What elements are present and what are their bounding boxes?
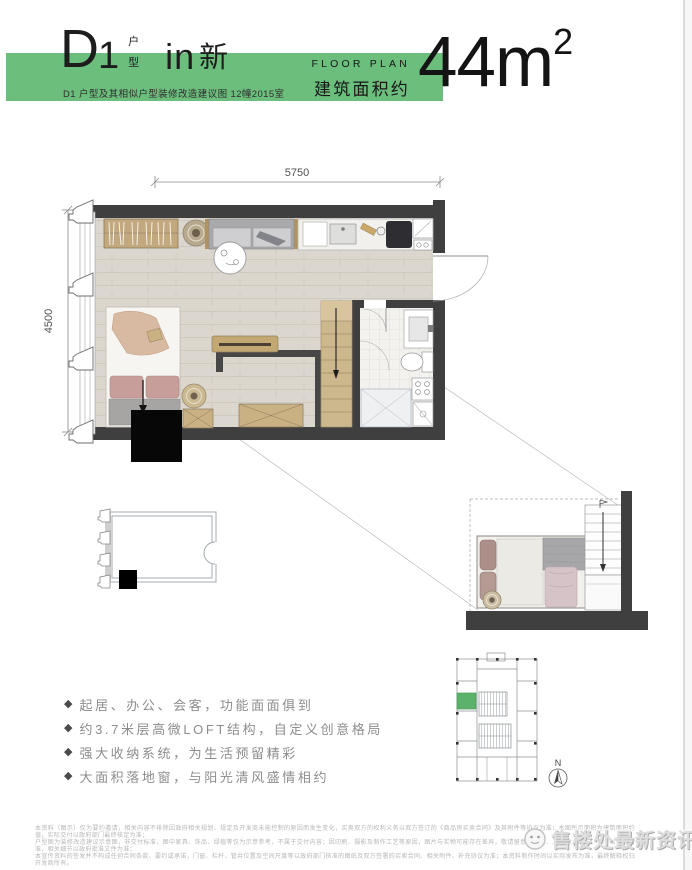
main-plan: 5750 4500 — [43, 167, 488, 462]
unit-label-stack: 户 型 — [128, 37, 139, 69]
disclaimer-line: 本宣传资料的签发并不构成任何合同条款、要约或承诺，门窗、栏杆、管井位置及空间尺度… — [35, 854, 635, 868]
unit-number: 1 — [98, 41, 119, 71]
detail-wall — [621, 491, 632, 619]
north-compass: N — [549, 758, 567, 787]
kitchen-counter — [298, 219, 433, 250]
unit-title: D 1 户 型 in 新 — [60, 27, 228, 71]
highlighted-unit — [457, 693, 476, 709]
feature-item: ◆ 大面积落地窗，与阳光清风盛情相约 — [64, 764, 383, 788]
area-superscript: 2 — [553, 21, 572, 62]
diamond-bullet-icon: ◆ — [64, 723, 72, 734]
diamond-bullet-icon: ◆ — [64, 771, 72, 782]
diamond-bullet-icon: ◆ — [64, 747, 72, 758]
watermark-text: 售楼处最新资讯 — [551, 824, 692, 853]
detail-stairs — [585, 500, 622, 610]
bedroom-detail — [466, 491, 648, 630]
entry-door — [433, 253, 488, 301]
area-value: 44m2 — [418, 24, 572, 98]
round-table — [214, 242, 246, 274]
watermark-logo-icon — [522, 826, 548, 852]
building-key-plan — [456, 653, 537, 781]
dimension-left — [62, 206, 74, 436]
feature-item: ◆ 约3.7米层高微LOFT结构，自定义创意格局 — [64, 716, 383, 740]
tv-cabinet — [239, 404, 303, 427]
feature-item: ◆ 强大收纳系统，为生活预留精彩 — [64, 740, 383, 764]
diamond-bullet-icon: ◆ — [64, 699, 72, 710]
floorplan-caption: FLOOR PLAN 建筑面积约 — [298, 58, 410, 100]
north-label: N — [555, 758, 562, 768]
wardrobe — [104, 219, 178, 248]
sofa — [205, 219, 298, 249]
stairs — [321, 301, 352, 427]
title-suffix-latin: in — [165, 43, 195, 71]
detail-bed — [477, 536, 587, 609]
unit-subtitle: D1 户型及其相似户型装修改造建议图 12幢2015室 — [63, 86, 284, 100]
feature-item: ◆ 起居、办公、会客，功能面面俱到 — [64, 692, 383, 716]
black-block — [131, 410, 182, 462]
dim-height-label: 4500 — [43, 309, 55, 333]
bathroom — [360, 300, 433, 427]
shelf-unit — [212, 336, 278, 352]
floorplan-caption-en: FLOOR PLAN — [298, 58, 410, 70]
unit-label-bottom: 型 — [128, 58, 139, 69]
window-strip — [69, 200, 95, 443]
floor-plan-page: D 1 户 型 in 新 D1 户型及其相似户型装修改造建议图 12幢2015室… — [0, 0, 692, 870]
area-label: 建筑面积约 — [298, 75, 410, 100]
loft-outline-plan — [98, 509, 218, 589]
unit-letter: D — [60, 27, 97, 71]
bed — [106, 307, 180, 427]
column-dots — [456, 658, 537, 781]
title-suffix-cn: 新 — [199, 46, 228, 71]
unit-label-top: 户 — [128, 37, 139, 48]
feature-list: ◆ 起居、办公、会客，功能面面俱到 ◆ 约3.7米层高微LOFT结构，自定义创意… — [64, 692, 383, 788]
dim-width-label: 5750 — [285, 167, 309, 179]
detail-floor-slab — [466, 611, 648, 630]
watermark: 售楼处最新资讯 — [522, 824, 692, 853]
